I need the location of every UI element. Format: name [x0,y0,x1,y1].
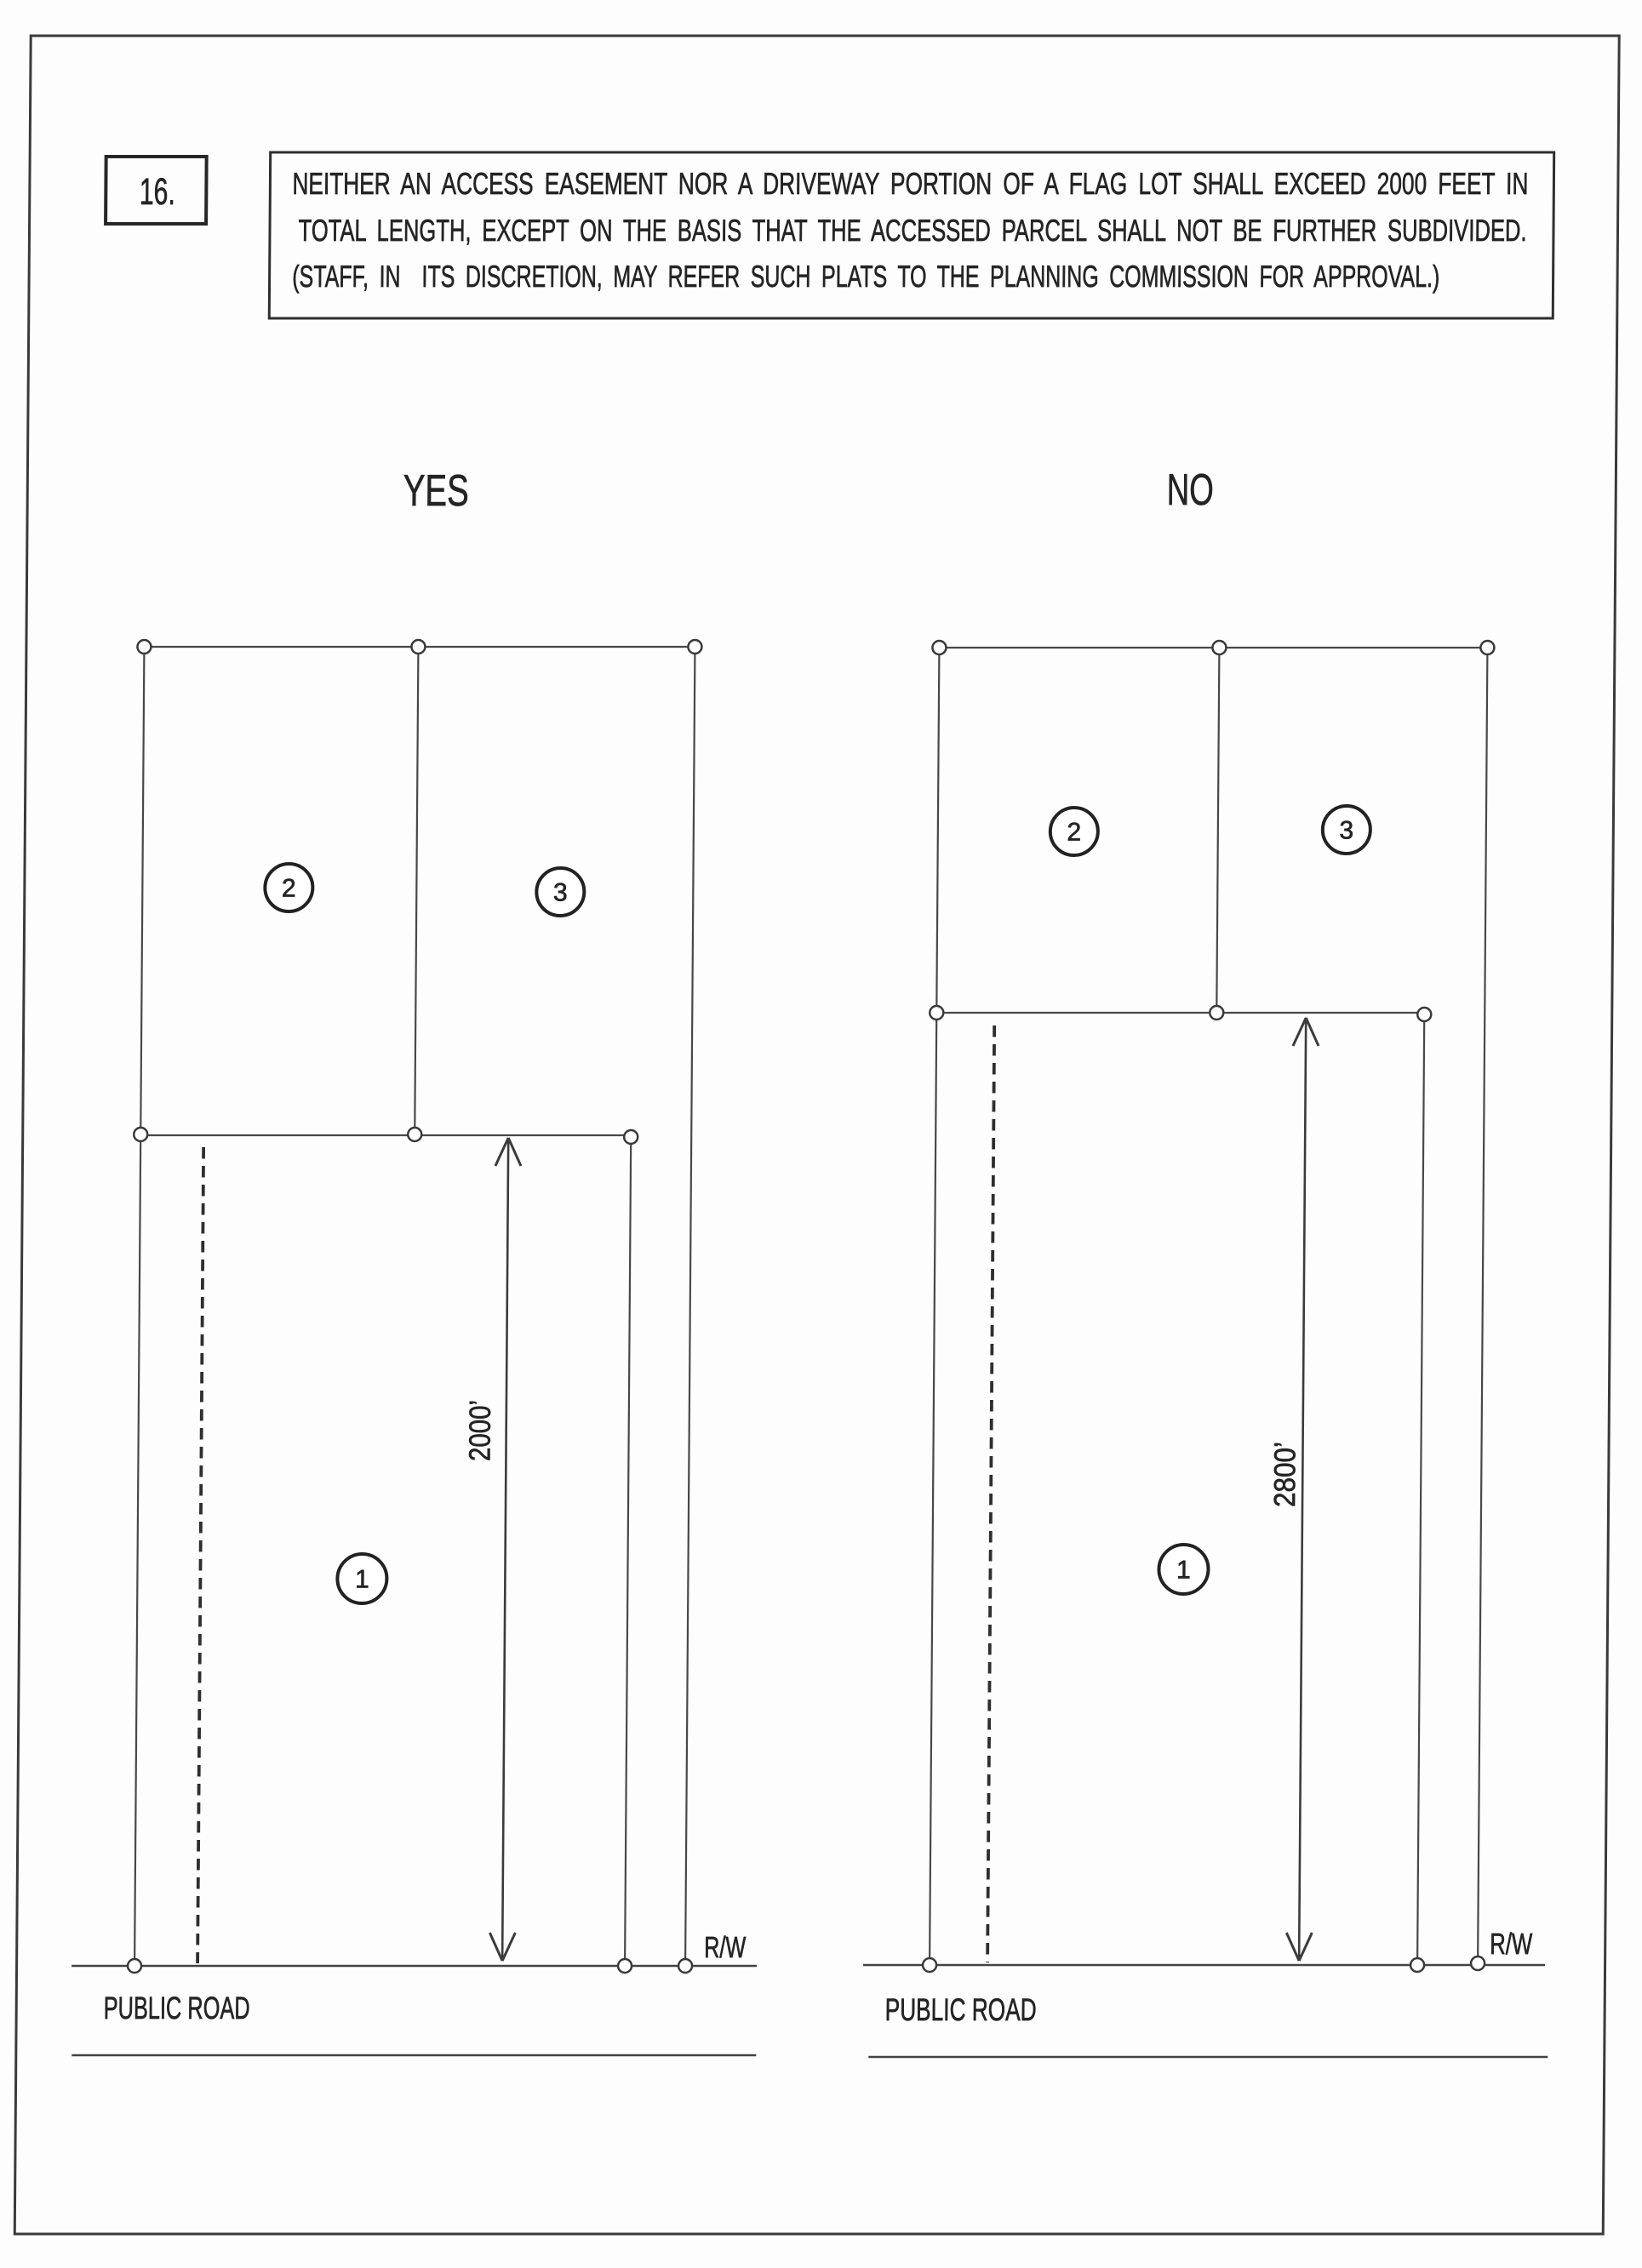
svg-text:3: 3 [1339,817,1353,845]
svg-text:16.: 16. [140,171,175,213]
svg-text:(STAFF, IN ITS DISCRETION, MA: (STAFF, IN ITS DISCRETION, MAY REFER SUC… [292,259,1439,294]
svg-text:1: 1 [1176,1557,1191,1585]
svg-text:TOTAL LENGTH, EXCEPT ON THE BA: TOTAL LENGTH, EXCEPT ON THE BASIS THAT T… [298,213,1526,248]
svg-text:NO: NO [1167,466,1214,515]
svg-text:PUBLIC ROAD: PUBLIC ROAD [885,1992,1037,2027]
svg-text:2800’: 2800’ [1268,1442,1302,1507]
svg-text:1: 1 [355,1566,369,1594]
svg-text:YES: YES [403,466,469,516]
svg-text:3: 3 [553,879,568,907]
svg-text:R/W: R/W [1490,1928,1532,1961]
svg-text:2000’: 2000’ [463,1400,497,1461]
svg-text:2: 2 [282,875,296,903]
svg-text:2: 2 [1067,819,1081,847]
svg-text:R/W: R/W [704,1931,746,1964]
svg-text:NEITHER AN ACCESS EASEMENT NOR: NEITHER AN ACCESS EASEMENT NOR A DRIVEWA… [292,166,1528,201]
svg-text:PUBLIC ROAD: PUBLIC ROAD [104,1991,250,2025]
